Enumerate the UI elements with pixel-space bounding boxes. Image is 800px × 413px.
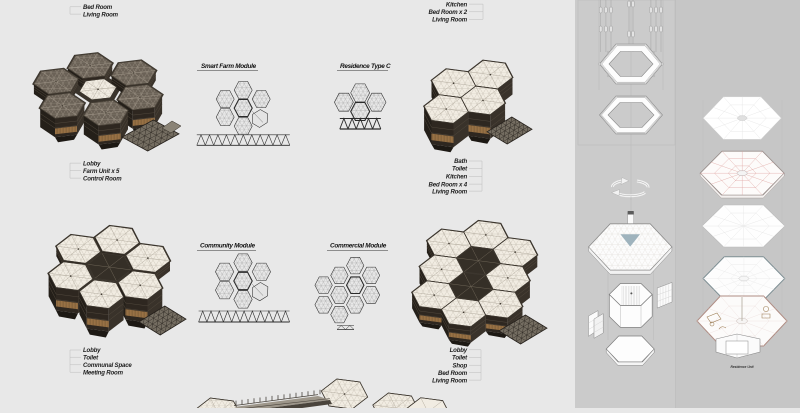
svg-text:Smart Farm Module: Smart Farm Module: [201, 63, 257, 70]
svg-text:Bed Room x 4: Bed Room x 4: [429, 181, 468, 188]
svg-text:Bath: Bath: [454, 158, 467, 165]
svg-text:Toilet: Toilet: [452, 166, 468, 173]
svg-text:Living Room: Living Room: [432, 188, 468, 195]
svg-text:Farm Unit x 5: Farm Unit x 5: [83, 168, 120, 175]
svg-text:Kitchen: Kitchen: [446, 174, 468, 181]
svg-text:Residence Type C: Residence Type C: [340, 63, 391, 70]
svg-text:Residence Unit: Residence Unit: [730, 365, 754, 369]
svg-text:Lobby: Lobby: [83, 160, 101, 167]
svg-text:Toilet: Toilet: [452, 355, 468, 362]
svg-text:Bed Room: Bed Room: [83, 4, 113, 11]
svg-text:Living Room: Living Room: [432, 377, 468, 384]
svg-text:Commercial Module: Commercial Module: [330, 243, 387, 250]
svg-text:Bed Room: Bed Room: [438, 370, 468, 377]
svg-text:Kitchen: Kitchen: [446, 1, 468, 8]
svg-text:Living Room: Living Room: [432, 17, 468, 24]
svg-text:Bed Room x 2: Bed Room x 2: [429, 9, 468, 16]
svg-text:Control Room: Control Room: [83, 175, 122, 182]
svg-text:Lobby: Lobby: [83, 347, 101, 354]
svg-text:Community Module: Community Module: [200, 243, 256, 250]
svg-text:Meeting Room: Meeting Room: [83, 369, 124, 376]
svg-text:Toilet: Toilet: [83, 354, 99, 361]
svg-text:Living Room: Living Room: [83, 11, 119, 18]
svg-text:Lobby: Lobby: [450, 347, 468, 354]
svg-text:Shop: Shop: [452, 362, 467, 369]
svg-text:Communal Space: Communal Space: [83, 362, 132, 369]
